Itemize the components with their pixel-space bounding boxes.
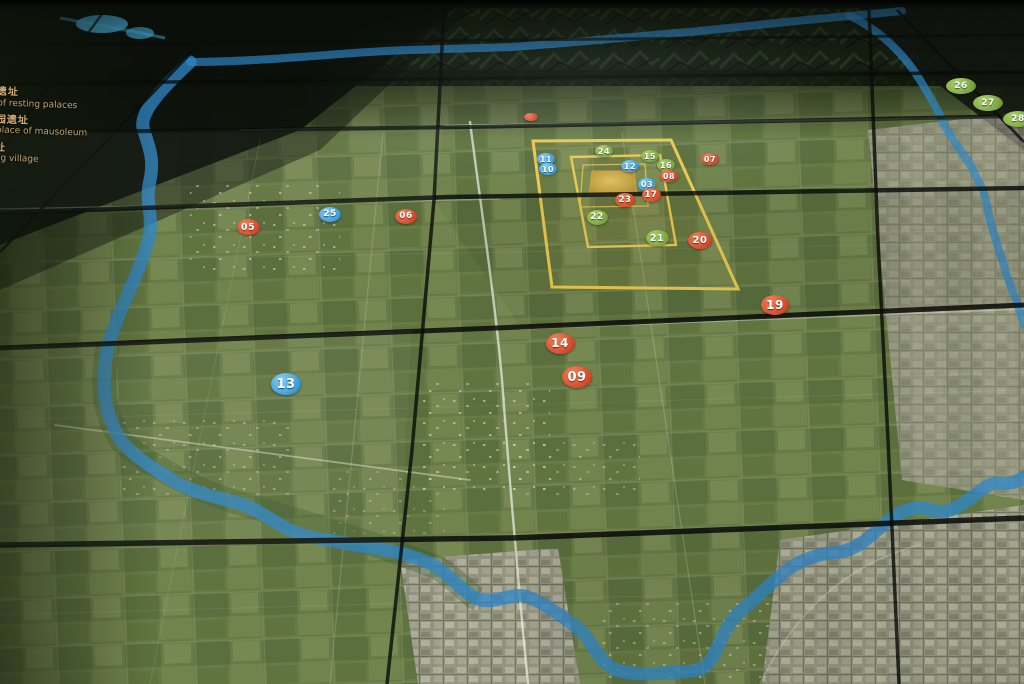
- map-marker-24: 24: [595, 145, 613, 157]
- map-marker-06: 06: [395, 209, 417, 224]
- legend-row: ank: [0, 169, 213, 187]
- map-marker-17: 17: [642, 188, 661, 202]
- legend-row: 陵园遗址 of place of mausoleum: [0, 114, 215, 144]
- map-marker-13: 13: [271, 373, 301, 395]
- map-marker-28: 28: [1003, 111, 1024, 127]
- map-marker-15: 15: [641, 150, 659, 162]
- map-marker-07: 07: [701, 153, 719, 165]
- map-marker-22: 22: [587, 210, 608, 225]
- map-marker-09: 09: [562, 366, 592, 388]
- map-marker-23: 23: [615, 193, 635, 207]
- map-marker-26: 26: [946, 78, 976, 94]
- map-marker-20: 20: [688, 232, 712, 249]
- map-marker-12: 12: [621, 160, 639, 172]
- map-marker-27: 27: [973, 95, 1003, 111]
- map-marker-14: 14: [546, 333, 575, 354]
- map-marker-19: 19: [761, 295, 789, 315]
- map-marker-08: 08: [660, 170, 678, 182]
- map-exhibit-photo: 2627282415161110120708031723222506052120…: [0, 0, 1024, 684]
- map-marker-21: 21: [646, 230, 669, 246]
- legend-row: 遗址 heng village: [0, 142, 214, 172]
- map-marker-05: 05: [237, 219, 260, 235]
- map-marker-10: 10: [539, 163, 557, 175]
- map-legend: 宫遗址 te of resting palaces 陵园遗址 of place …: [0, 86, 216, 194]
- legend-en: ank: [0, 169, 213, 187]
- map-marker-unlabeled: [524, 113, 538, 121]
- map-marker-25: 25: [319, 207, 341, 222]
